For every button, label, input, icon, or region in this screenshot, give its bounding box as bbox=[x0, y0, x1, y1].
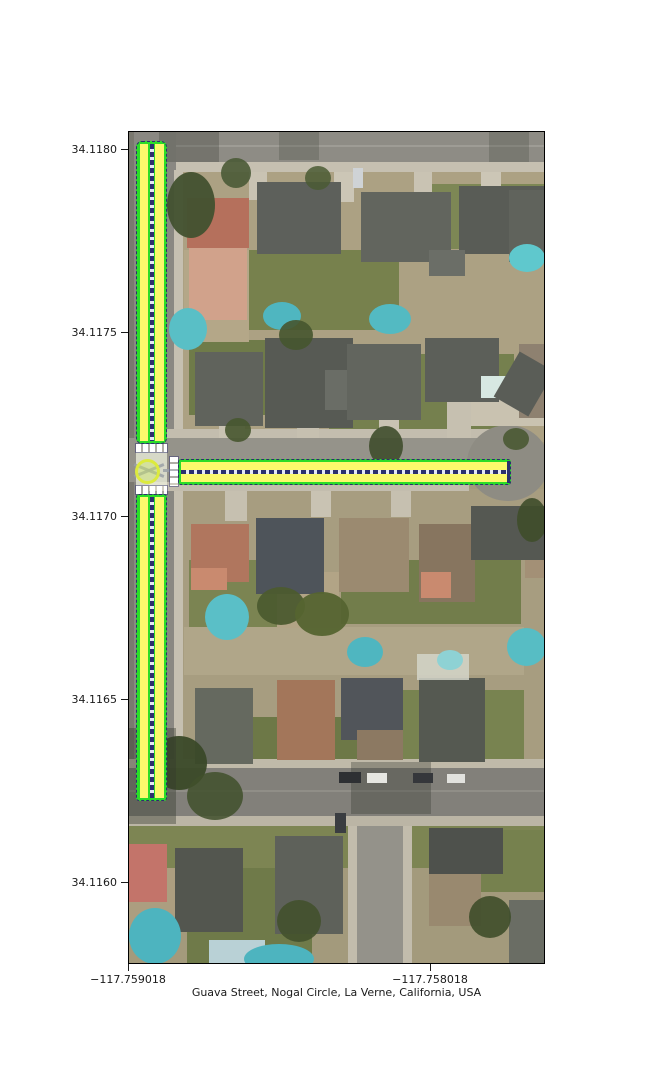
y-tick-label: 34.1175 bbox=[0, 325, 117, 340]
y-tick-label: 34.1160 bbox=[0, 875, 117, 890]
figure: 34.118034.117534.117034.116534.1160−117.… bbox=[0, 0, 652, 1080]
y-tick-label: 34.1170 bbox=[0, 509, 117, 524]
lane bbox=[140, 497, 149, 798]
y-tick bbox=[121, 516, 128, 517]
stop-line bbox=[136, 444, 167, 452]
x-tick-label: −117.758018 bbox=[360, 972, 500, 987]
lane bbox=[181, 474, 508, 482]
y-tick-label: 34.1180 bbox=[0, 142, 117, 157]
y-tick bbox=[121, 699, 128, 700]
lane bbox=[140, 144, 149, 441]
y-tick bbox=[121, 882, 128, 883]
lane bbox=[181, 462, 508, 470]
y-tick bbox=[121, 149, 128, 150]
x-tick bbox=[430, 964, 431, 971]
y-tick bbox=[121, 332, 128, 333]
lane-divider bbox=[150, 497, 154, 798]
stop-line bbox=[136, 486, 167, 494]
x-tick-label: −117.759018 bbox=[58, 972, 198, 987]
y-tick-label: 34.1165 bbox=[0, 692, 117, 707]
lane bbox=[155, 497, 164, 798]
lane bbox=[155, 144, 164, 441]
map-plot bbox=[128, 131, 545, 964]
junction-node bbox=[135, 459, 160, 484]
street-network-overlay bbox=[129, 132, 544, 963]
stop-line bbox=[170, 457, 178, 486]
edge-end-cap bbox=[507, 461, 510, 483]
x-tick bbox=[128, 964, 129, 971]
lane-divider bbox=[181, 470, 508, 474]
lane-divider bbox=[150, 144, 154, 441]
x-axis-caption: Guava Street, Nogal Circle, La Verne, Ca… bbox=[128, 986, 545, 1000]
